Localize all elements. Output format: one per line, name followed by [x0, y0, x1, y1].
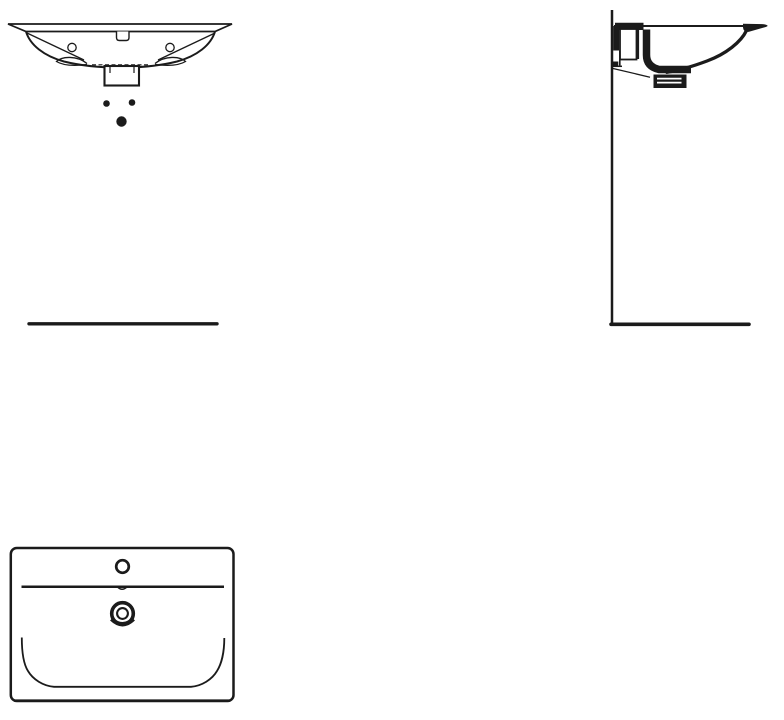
rim-bar: [8, 24, 232, 32]
outlet-flange-section: [654, 75, 687, 89]
fixing-hole-left: [68, 43, 76, 51]
front-elevation-view: [8, 24, 232, 324]
plan-top-view: [11, 548, 234, 701]
drawing-sheet: [0, 0, 784, 720]
mounting-dot-right: [129, 99, 136, 106]
side-profile-section-view: [611, 10, 768, 324]
basin-underside-line: [612, 68, 650, 77]
inner-back-wall-section: [647, 30, 692, 70]
washbasin-technical-drawing: [0, 0, 784, 720]
mounting-dot-left: [103, 100, 110, 107]
back-hollow-section: [620, 29, 637, 60]
tap-hole-section: [117, 32, 130, 41]
mounting-dot-center: [116, 116, 126, 126]
wall-gap-section: [613, 26, 619, 51]
fixing-hole-right: [166, 43, 174, 51]
